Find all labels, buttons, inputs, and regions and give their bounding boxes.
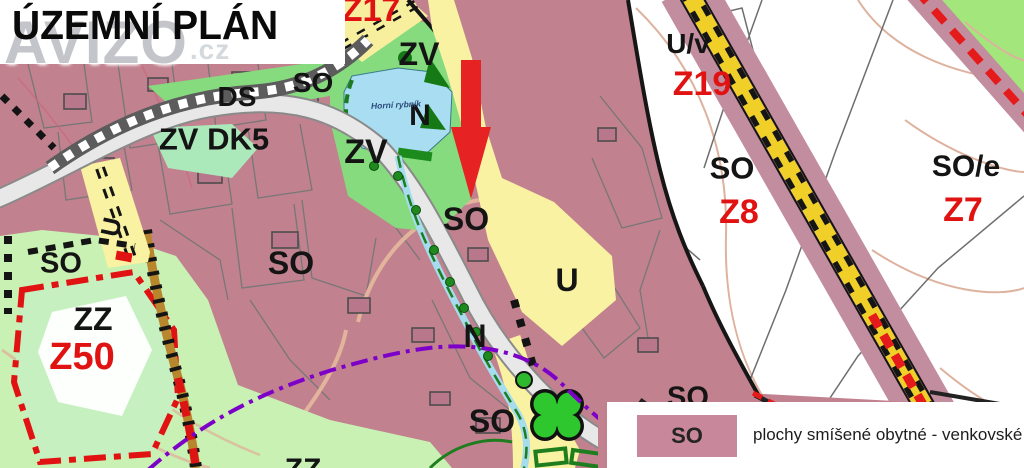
- zone-label-zz-cut: ZZ: [285, 455, 322, 468]
- zone-label-z19: Z19: [673, 67, 732, 101]
- zone-label-so-bottom: SO: [469, 405, 515, 437]
- zone-label-z17: Z17: [342, 0, 401, 27]
- zone-label-z8: Z8: [719, 195, 759, 229]
- zone-label-zv-dk5: ZV DK5: [159, 124, 269, 155]
- zone-label-so-top: SO: [293, 69, 333, 97]
- zone-label-n-center: N: [463, 320, 486, 352]
- page-title: ÚZEMNÍ PLÁN: [12, 2, 278, 49]
- zoning-map-screenshot: Z17 ZV N Horní rybník ZV SO DS ZV DK5 SO…: [0, 0, 1024, 468]
- zone-label-ds: DS: [218, 83, 257, 111]
- zone-label-z50: Z50: [49, 338, 114, 376]
- zone-label-uv: U/v: [666, 30, 710, 58]
- zone-label-so-e: SO/e: [932, 152, 1000, 182]
- zone-label-so-left: SO: [268, 247, 314, 279]
- legend: SO plochy smíšené obytné - venkovské: [607, 402, 1024, 468]
- zone-label-u-center: U: [555, 264, 578, 296]
- zone-label-z7: Z7: [943, 193, 983, 227]
- zone-label-zv-left: ZV: [344, 135, 387, 169]
- legend-swatch-so: SO: [637, 415, 737, 457]
- zone-label-so-z8: SO: [710, 153, 755, 184]
- zone-label-zz: ZZ: [73, 303, 112, 335]
- zone-label-so-farleft: SO: [40, 250, 82, 279]
- zone-label-so-center: SO: [443, 203, 489, 235]
- legend-description: plochy smíšené obytné - venkovské: [753, 402, 1022, 468]
- zone-label-zv-top: ZV: [399, 38, 440, 70]
